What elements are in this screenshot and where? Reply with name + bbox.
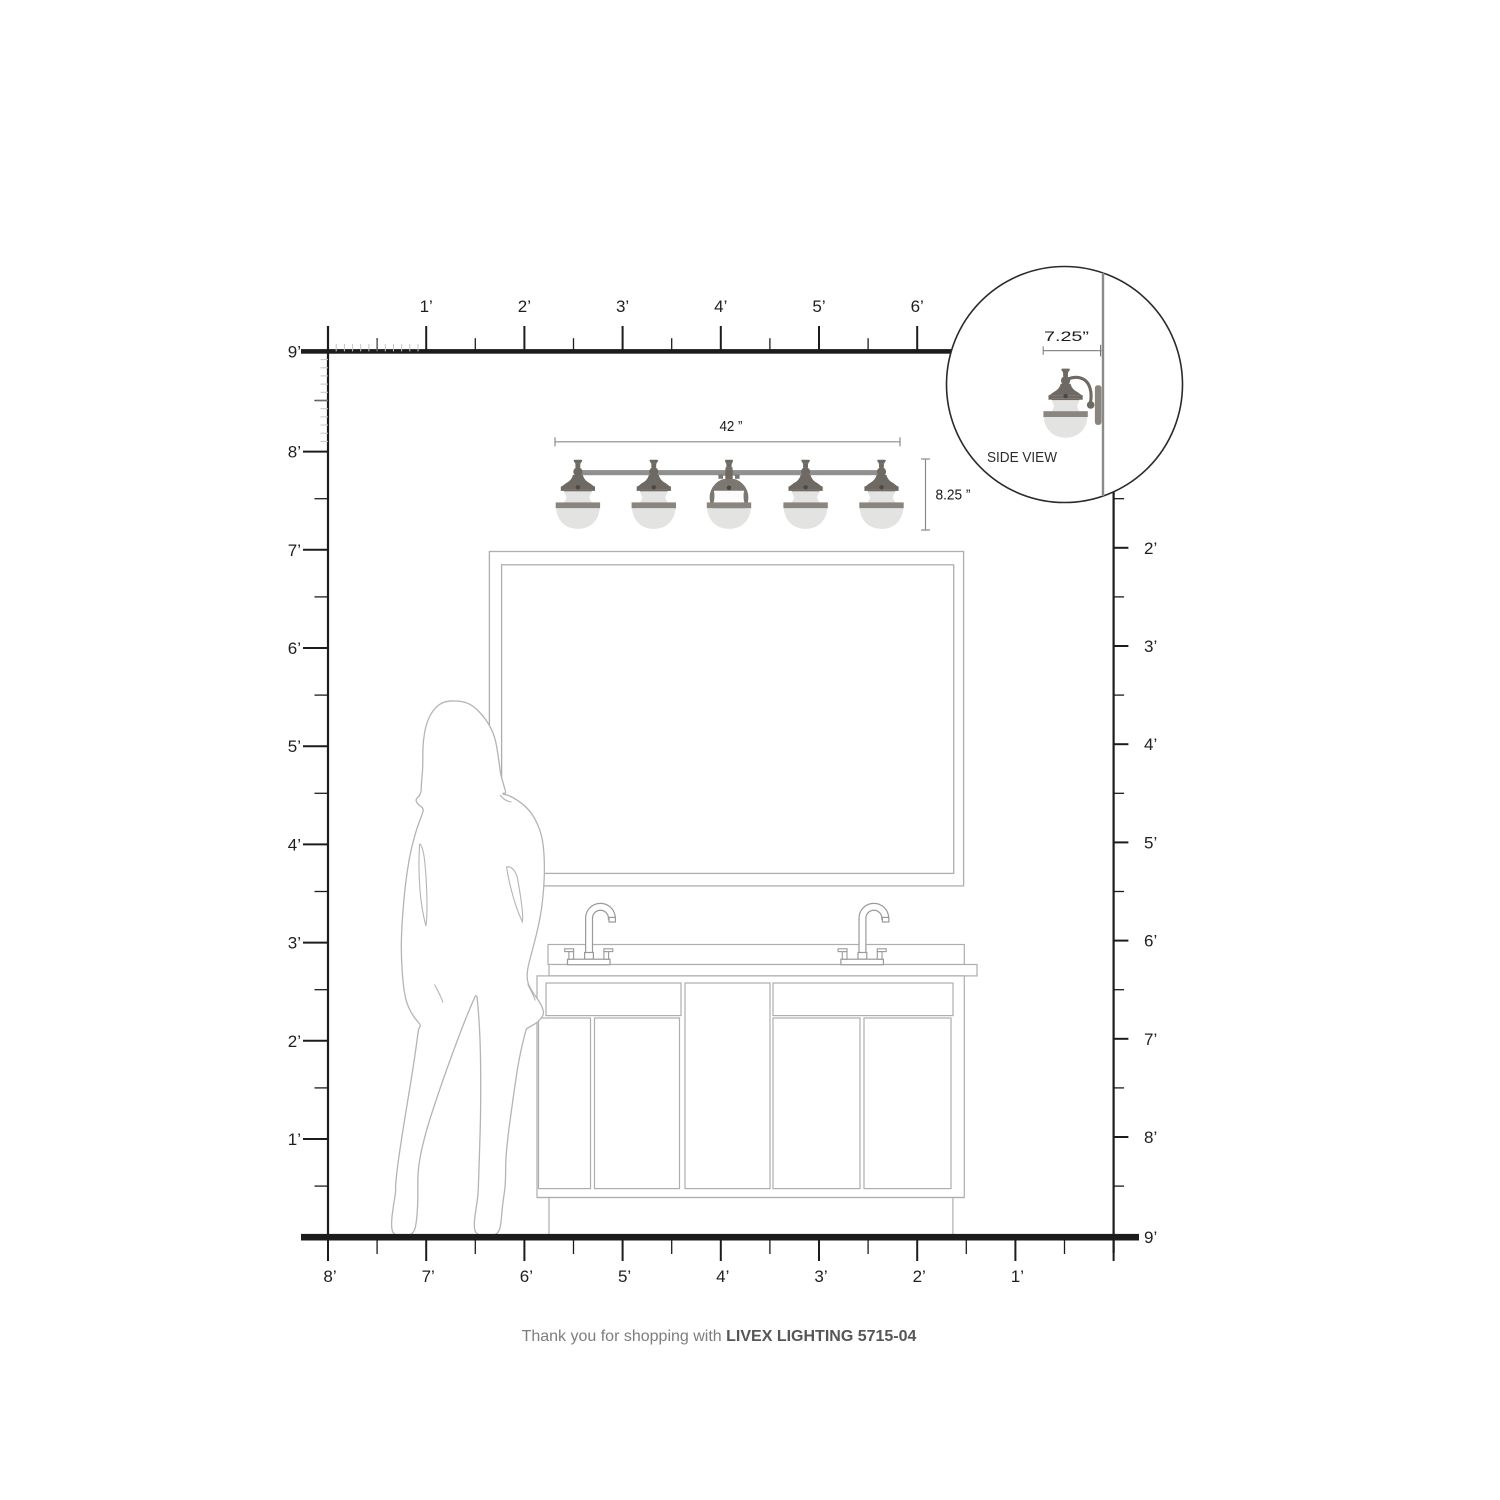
svg-text:5’: 5’ (288, 737, 301, 756)
svg-text:4’: 4’ (288, 835, 301, 854)
svg-text:7’: 7’ (1144, 1030, 1157, 1049)
svg-text:6’: 6’ (1144, 932, 1157, 951)
svg-text:6’: 6’ (911, 297, 924, 316)
svg-text:Thank you for shopping with LI: Thank you for shopping with LIVEX LIGHTI… (522, 1328, 917, 1345)
svg-text:8’: 8’ (1144, 1128, 1157, 1147)
svg-text:5’: 5’ (812, 297, 825, 316)
svg-text:8’: 8’ (323, 1267, 336, 1286)
svg-text:SIDE VIEW: SIDE VIEW (987, 450, 1057, 466)
svg-text:4’: 4’ (1144, 735, 1157, 754)
svg-text:5’: 5’ (618, 1267, 631, 1286)
svg-text:8.25 ”: 8.25 ” (936, 488, 971, 504)
svg-text:7’: 7’ (288, 541, 301, 560)
svg-text:6’: 6’ (520, 1267, 533, 1286)
svg-text:6’: 6’ (288, 639, 301, 658)
svg-text:3’: 3’ (814, 1267, 827, 1286)
svg-text:4’: 4’ (714, 297, 727, 316)
svg-text:8’: 8’ (288, 443, 301, 462)
svg-text:42 ”: 42 ” (720, 419, 743, 435)
svg-text:4’: 4’ (716, 1267, 729, 1286)
svg-text:2’: 2’ (288, 1032, 301, 1051)
svg-text:2’: 2’ (518, 297, 531, 316)
svg-text:7’: 7’ (422, 1267, 435, 1286)
svg-text:7.25”: 7.25” (1044, 328, 1089, 344)
svg-text:1’: 1’ (420, 297, 433, 316)
svg-text:1’: 1’ (288, 1130, 301, 1149)
svg-text:3’: 3’ (616, 297, 629, 316)
svg-text:3’: 3’ (288, 934, 301, 953)
svg-text:9’: 9’ (288, 342, 301, 361)
svg-text:2’: 2’ (913, 1267, 926, 1286)
svg-text:5’: 5’ (1144, 833, 1157, 852)
svg-text:1’: 1’ (1011, 1267, 1024, 1286)
svg-text:2’: 2’ (1144, 539, 1157, 558)
svg-text:9’: 9’ (1144, 1228, 1157, 1247)
svg-text:3’: 3’ (1144, 637, 1157, 656)
